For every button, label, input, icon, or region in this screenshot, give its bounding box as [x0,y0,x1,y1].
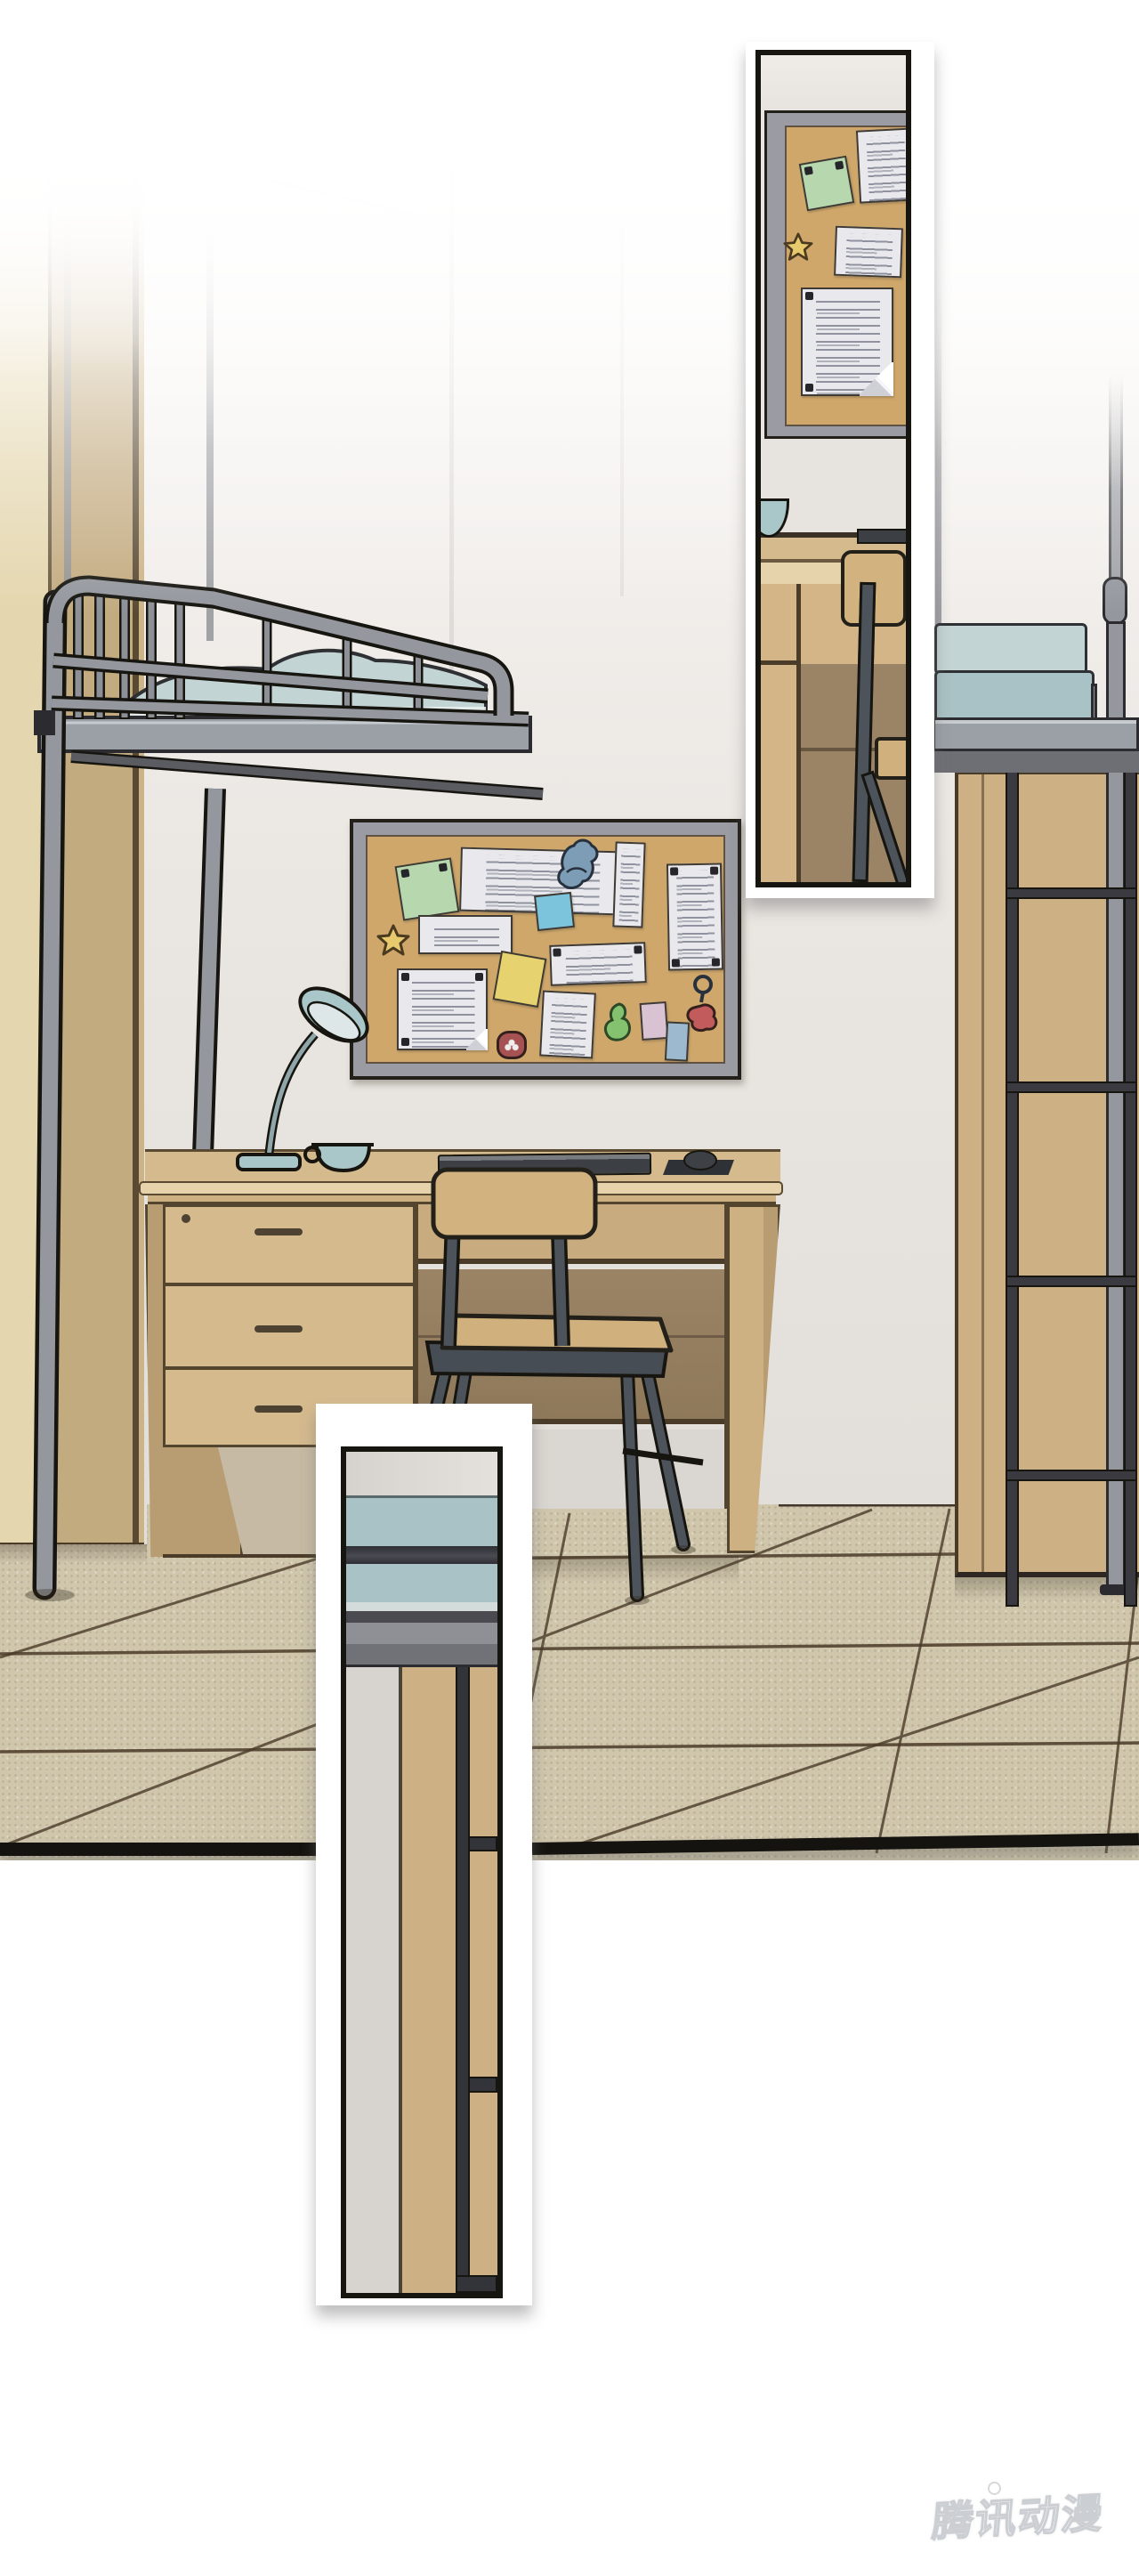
corkboard-surface [366,835,725,1064]
pb-ladder-rung [456,2275,497,2293]
bed-pole-right [935,267,941,628]
bed-front-post [44,602,55,1588]
yellow-sticky-note [493,951,547,1008]
panel-carcass-line [761,660,796,665]
bed-platform-right-underside [933,751,1139,773]
ladder-rung [1006,887,1137,899]
pb-bedding-top [346,1495,497,1546]
webtoon-page: 腾讯动漫 [0,0,1139,2576]
pb-rail-thin [346,1611,497,1623]
pb-ladder-rung [468,2077,497,2093]
panel-wall-top [761,55,906,110]
platform-bracket [34,710,55,735]
bed-rail-spindle [1091,684,1097,721]
drawer-handle [254,1325,303,1333]
folded-bedding-top [934,623,1087,675]
pink-card [640,1001,669,1041]
watermark: 腾讯动漫 [929,2481,1114,2561]
inset-panel-top-frame [755,50,911,887]
inset-panel-bottom-frame [341,1446,503,2298]
wide-paper [549,942,647,986]
pb-platform-under [346,1644,497,1667]
green-sticky-note [395,857,460,920]
panel-green-sticky [799,156,855,212]
post-foot-shadow [25,1589,75,1601]
desk-lamp-and-cup [214,975,400,1184]
strip-paper [612,841,645,928]
ladder-rung [1006,1081,1137,1093]
bed-post-right-cap [1103,577,1127,625]
panel-bottom-edge-left [0,1843,320,1856]
red-flower-ornament [497,1031,527,1059]
inset-panel-top [746,42,934,898]
drawer-handle [254,1228,303,1235]
pb-wall [346,1452,497,1495]
blue-dinosaur-doodle [551,837,602,892]
pb-ladder-rail [456,1667,470,2293]
pb-lower [346,1667,497,2293]
ladder-rung [1006,1276,1137,1287]
ladder-rung [1006,1470,1137,1481]
lamp-base [238,1154,300,1170]
pb-platform [346,1623,497,1644]
blue-sticky-note [534,892,575,931]
corkboard [350,819,741,1080]
panel-chair-seat [875,737,910,780]
dorm-room-scene [0,0,1139,1860]
lamp-arm-outline [269,1034,315,1157]
pb-wall-strip [346,1667,402,2293]
desk-foot [163,1447,243,1554]
panel-big-paper [801,288,893,396]
bottom-paper [539,990,596,1058]
panel-wide-paper [834,226,903,279]
pb-bedding-bottom [346,1564,497,1602]
wardrobe-door-seam [981,774,984,1572]
big-paper-folded-corner [397,968,488,1050]
panel-corkboard [764,110,911,439]
panel-star-doodle [783,232,813,263]
folded-bedding-bottom [934,670,1095,722]
star-doodle [376,924,410,958]
mid-paper [418,915,513,954]
tea-cup [317,1145,369,1171]
green-doodle [602,1000,635,1043]
panel-paper-top-right [856,127,911,203]
bed-platform-right [933,717,1139,751]
tall-paper [666,863,723,970]
pb-sheet-line [346,1602,497,1611]
chair-backrest [433,1170,595,1237]
pb-ladder-rung [468,1836,497,1851]
inset-panel-bottom [316,1404,532,2305]
pb-rail [346,1546,497,1564]
bed-post-right-upper [1109,374,1123,587]
red-keychain [683,974,721,1034]
wall-seam-line [620,223,624,596]
panel-keyboard [857,529,910,544]
panel-cork-surface [785,126,911,426]
drawer-handle [254,1405,303,1413]
platform-under-rim [71,757,543,794]
